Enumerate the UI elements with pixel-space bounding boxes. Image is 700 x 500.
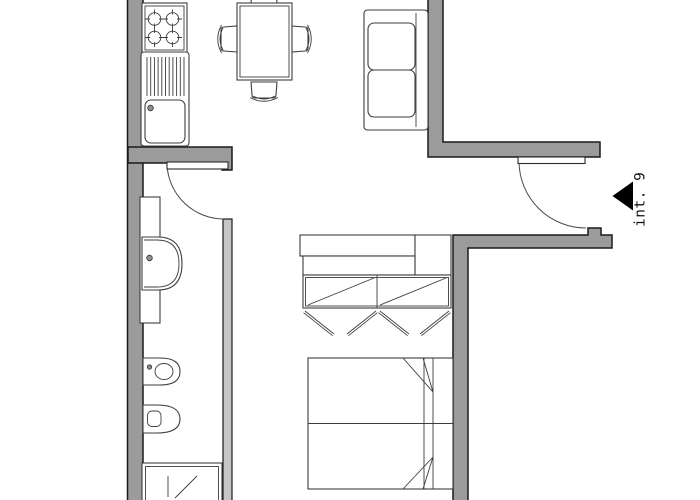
double-bed-icon bbox=[308, 358, 453, 489]
bathroom-door bbox=[167, 162, 228, 219]
wall-living-east-and-entry-top bbox=[428, 0, 600, 157]
entry-door-leaf bbox=[518, 157, 585, 164]
bidet-faucet bbox=[147, 365, 151, 369]
chair-bottom-icon bbox=[250, 82, 278, 101]
bedroom-bench-icon bbox=[300, 235, 451, 275]
sofa-cushion-top bbox=[368, 23, 415, 70]
toilet-icon bbox=[143, 405, 180, 433]
wardrobe-open-doors bbox=[304, 311, 451, 336]
sofa-icon bbox=[364, 10, 428, 130]
washbasin-faucet bbox=[147, 255, 153, 261]
washbasin-icon bbox=[142, 237, 182, 290]
sink-faucet bbox=[148, 105, 154, 111]
unit-number-label: int. 9 bbox=[630, 162, 651, 236]
sofa-cushion-bottom bbox=[368, 70, 415, 117]
shower-tray-icon bbox=[142, 463, 222, 500]
wardrobe-icon bbox=[303, 275, 451, 336]
entry-door bbox=[518, 157, 586, 228]
bathroom-fixtures bbox=[140, 197, 222, 500]
kitchen-sink-icon bbox=[141, 52, 189, 146]
chair-right-icon bbox=[292, 25, 311, 53]
floor-plan: int. 9 bbox=[0, 0, 700, 500]
bathroom-door-leaf bbox=[167, 162, 228, 169]
dining-table-icon bbox=[237, 3, 292, 80]
chair-top-icon bbox=[250, 0, 278, 3]
wall-entry-bottom-and-bedroom-west bbox=[453, 228, 612, 500]
bidet-icon bbox=[143, 358, 180, 385]
chair-left-icon bbox=[218, 25, 237, 53]
bathroom-door-arc bbox=[167, 165, 224, 219]
floor-plan-drawing bbox=[0, 0, 700, 500]
stove-icon bbox=[142, 3, 187, 53]
entry-door-arc bbox=[519, 162, 586, 228]
wall-bathroom-partition bbox=[223, 219, 232, 500]
